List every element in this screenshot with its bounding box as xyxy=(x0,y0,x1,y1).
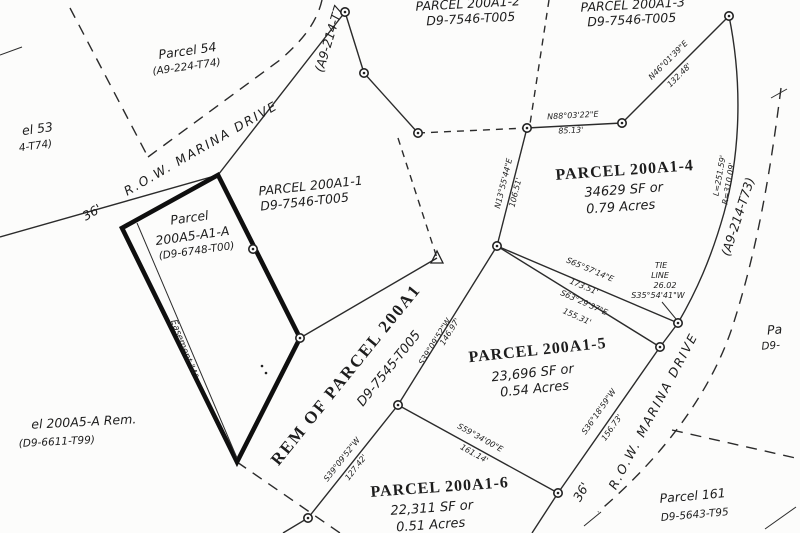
tick-left-edge xyxy=(0,47,22,55)
parcel-200a5-a-rem-ref: (D9-6611-T99) xyxy=(18,434,95,450)
survey-marker xyxy=(554,489,562,497)
bearing-line-n46 xyxy=(622,16,729,123)
survey-marker xyxy=(618,119,626,127)
rem-of-parcel-200a1-label: REM OF PARCEL 200A1 xyxy=(267,280,425,469)
parcel-161-ref: D9-5643-T95 xyxy=(660,506,729,524)
survey-marker xyxy=(394,401,402,409)
parcel54-53-boundary-line xyxy=(70,8,148,157)
bearing-labels: N46°01'39"E 132.48' N88°03'22"E 85.13' N… xyxy=(168,38,693,483)
tick-bottom-center xyxy=(584,512,601,526)
tick-top-right xyxy=(771,89,787,98)
easement-a-label: Easement "A" xyxy=(168,318,200,380)
parcel-53-ref: 4-T74) xyxy=(18,138,53,155)
parcel-200a5-a1-a-outline xyxy=(122,175,300,462)
survey-marker xyxy=(523,124,531,132)
rem-north-dashed-line xyxy=(418,128,527,133)
parcel-200a5-a1-a-label-1: Parcel xyxy=(169,207,210,227)
tie-line-label-3: 26.02 xyxy=(654,281,677,290)
distance-s59: 161.14' xyxy=(459,443,490,466)
parcel-53-label: el 53 xyxy=(21,119,54,138)
road-width-lower-label: 36' xyxy=(570,480,593,504)
parcel-200a1-5-label: PARCEL 200A1-5 xyxy=(468,335,608,366)
parcel-200a5-a-rem-label: el 200A5-A Rem. xyxy=(31,411,137,431)
plat-map-page: Parcel 54 (A9-224-T74) el 53 4-T74) PARC… xyxy=(0,0,800,533)
distance-s63: 155.31' xyxy=(561,306,592,327)
marina-drive-lower-label: R.O.W. MARINA DRIVE xyxy=(605,330,701,492)
parcel-edge-right-label: Pa xyxy=(766,321,782,337)
survey-marker xyxy=(414,129,422,137)
parcel-161-north-boundary-line xyxy=(672,430,800,459)
survey-marker xyxy=(493,242,501,250)
survey-marker xyxy=(674,319,682,327)
distance-n88: 85.13' xyxy=(558,125,584,135)
tie-line-label-1: TIE xyxy=(655,261,668,270)
tie-line-label-2: LINE xyxy=(651,271,670,280)
survey-marker xyxy=(249,245,257,253)
bearing-n88: N88°03'22"E xyxy=(547,110,600,122)
tick-bottom-right xyxy=(765,507,796,529)
tie-line-label-4: S35°54'41"W xyxy=(631,291,685,300)
plat-ref-top-left-label: (A9-214-T7 xyxy=(311,3,346,73)
survey-marker xyxy=(360,69,368,77)
survey-marker xyxy=(304,514,312,522)
survey-marker xyxy=(725,12,733,20)
parcel-200a1-4-area-ac: 0.79 Acres xyxy=(586,198,656,218)
parcel-200a1-1-east-boundary-line xyxy=(398,138,437,258)
survey-marker xyxy=(656,343,664,351)
distance-n13: 106.51' xyxy=(508,177,524,208)
plat-map-svg: Parcel 54 (A9-224-T74) el 53 4-T74) PARC… xyxy=(0,0,800,533)
parcel-161-label: Parcel 161 xyxy=(659,485,726,506)
parcel-200a1-6-area-ac: 0.51 Acres xyxy=(396,516,466,533)
map-dot xyxy=(261,365,264,368)
parcel-200a1-6-label: PARCEL 200A1-6 xyxy=(370,474,509,501)
lot-line-p1-p2 xyxy=(345,12,364,73)
road-width-upper-label: 36' xyxy=(80,201,104,224)
parcel-edge-right-ref: D9- xyxy=(761,339,781,353)
parcel-200a1-4-label: PARCEL 200A1-4 xyxy=(555,157,694,184)
lot-line-p2-p3 xyxy=(364,73,418,133)
parcel-200a1-2-3-boundary-line xyxy=(530,0,549,124)
survey-marker xyxy=(296,334,304,342)
map-dot xyxy=(265,372,268,375)
